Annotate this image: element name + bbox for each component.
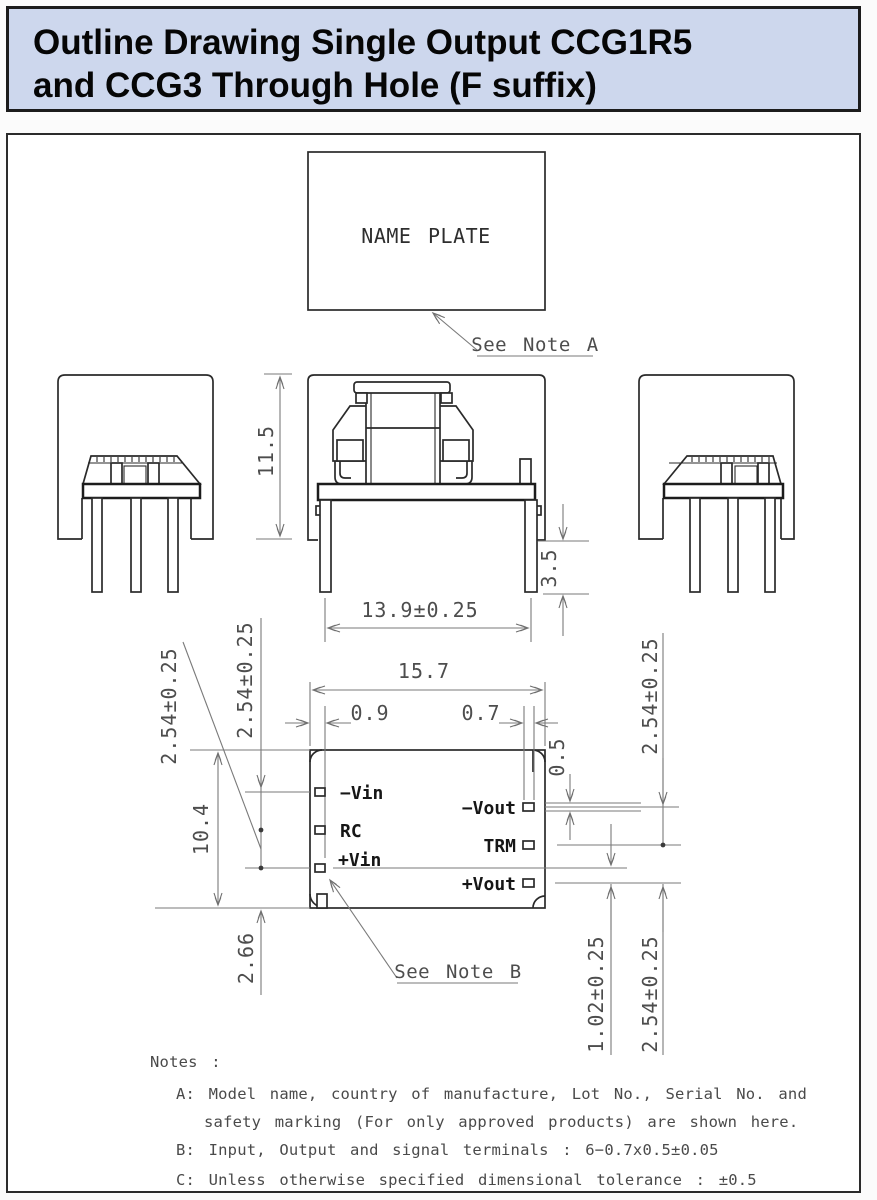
left-side-view — [58, 375, 213, 592]
pin — [690, 498, 700, 592]
dim-pitch-right-bottom: 2.54±0.25 — [638, 935, 662, 1052]
label-neg-vout: −Vout — [462, 798, 516, 819]
pin — [525, 500, 537, 592]
note-b: B: Input, Output and signal terminals : … — [176, 1141, 719, 1159]
dim-row-stagger: 1.02±0.25 — [584, 935, 608, 1052]
pin — [92, 498, 102, 592]
dim-pitch-left-leader: 2.54±0.25 — [157, 647, 181, 764]
pad-trm — [523, 841, 534, 849]
dim-terminal-thickness: 0.5 — [545, 737, 569, 776]
dim-pin-offset-left: 0.9 — [350, 701, 389, 725]
dim-body-length: 15.7 — [398, 659, 450, 683]
dim-pin-row-span: 13.9±0.25 — [361, 598, 478, 622]
dim-pitch-right-top: 2.54±0.25 — [638, 637, 662, 754]
label-neg-vin: −Vin — [340, 783, 383, 804]
pin — [320, 500, 331, 592]
dim-pin-edge-inset: 2.66 — [234, 932, 258, 984]
pad-pos-vin — [315, 864, 325, 872]
label-pos-vout: +Vout — [462, 874, 516, 895]
note-a-callout: See Note A — [471, 334, 598, 356]
note-a-line2: safety marking (For only approved produc… — [204, 1113, 798, 1131]
pin — [168, 498, 178, 592]
pin — [131, 498, 141, 592]
dim-terminal-width: 0.7 — [461, 701, 500, 725]
label-rc: RC — [340, 821, 362, 842]
dim-body-depth: 10.4 — [189, 803, 213, 855]
front-view — [308, 375, 545, 592]
pad-neg-vout — [523, 803, 534, 811]
pin — [728, 498, 738, 592]
pad-pos-vout — [523, 879, 534, 887]
pad-rc — [315, 826, 325, 834]
dim-standoff-height: 3.5 — [537, 548, 561, 587]
note-b-callout: See Note B — [394, 961, 521, 983]
label-trm: TRM — [483, 836, 516, 857]
notes-title: Notes : — [150, 1053, 221, 1071]
note-a-line1: A: Model name, country of manufacture, L… — [176, 1085, 807, 1103]
name-plate-view: NAME PLATE See Note A — [308, 152, 599, 356]
label-pos-vin: +Vin — [338, 850, 381, 871]
name-plate-label: NAME PLATE — [361, 224, 490, 248]
right-side-view — [639, 375, 794, 592]
outline-drawing: NAME PLATE See Note A — [0, 0, 877, 1200]
pad-neg-vin — [315, 788, 325, 796]
datasheet-page: { "header": { "title_line1": "Outline Dr… — [0, 0, 877, 1200]
pin — [765, 498, 775, 592]
dim-module-height: 11.5 — [254, 425, 278, 477]
note-c: C: Unless otherwise specified dimensiona… — [176, 1171, 757, 1189]
dim-pitch-left-top: 2.54±0.25 — [233, 621, 257, 738]
